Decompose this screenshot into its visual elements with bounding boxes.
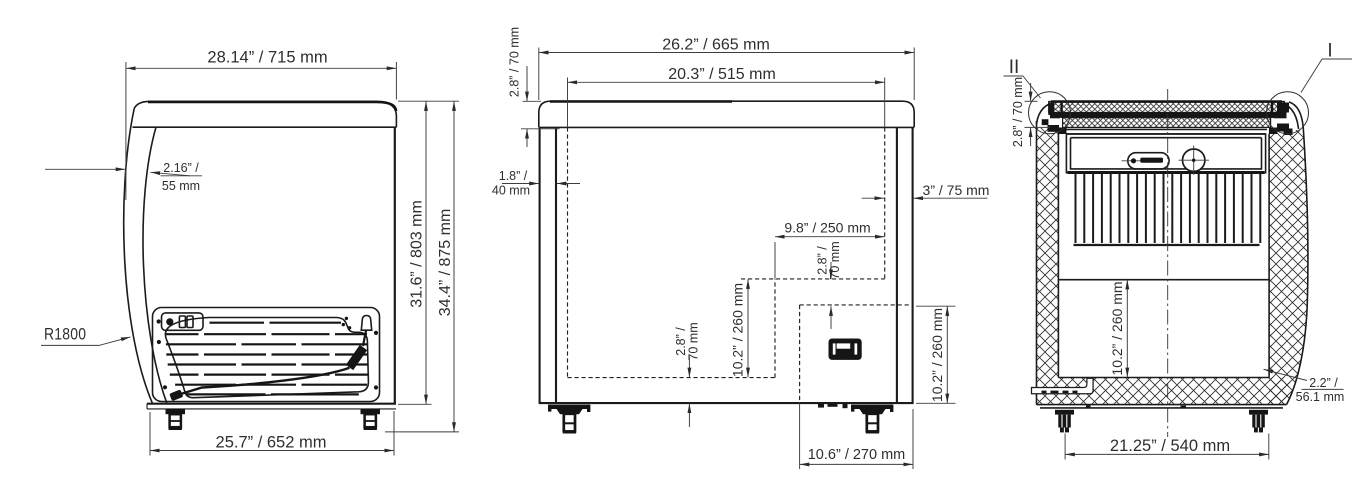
svg-text:28.14” / 715 mm: 28.14” / 715 mm — [207, 49, 327, 67]
svg-text:2.8” / 70 mm: 2.8” / 70 mm — [508, 27, 522, 97]
svg-text:10.2” / 260 mm: 10.2” / 260 mm — [1109, 281, 1125, 375]
svg-text:1.8” /: 1.8” / — [499, 169, 528, 183]
svg-text:20.3” / 515 mm: 20.3” / 515 mm — [668, 66, 776, 83]
svg-text:10.2” / 260 mm: 10.2” / 260 mm — [929, 308, 945, 402]
svg-text:3” / 75 mm: 3” / 75 mm — [923, 182, 990, 198]
svg-text:56.1 mm: 56.1 mm — [1296, 390, 1345, 404]
svg-text:55 mm: 55 mm — [162, 179, 200, 193]
svg-text:10.6” / 270 mm: 10.6” / 270 mm — [808, 447, 906, 463]
svg-text:9.8” / 250 mm: 9.8” / 250 mm — [784, 220, 870, 236]
svg-text:2.16” /: 2.16” / — [163, 161, 199, 175]
svg-text:25.7” / 652 mm: 25.7” / 652 mm — [216, 433, 327, 451]
svg-text:40 mm: 40 mm — [492, 183, 530, 197]
svg-text:26.2” / 665 mm: 26.2” / 665 mm — [662, 37, 770, 54]
svg-text:II: II — [1009, 57, 1020, 78]
svg-text:R1800: R1800 — [44, 325, 86, 344]
svg-text:10.2” / 260 mm: 10.2” / 260 mm — [730, 283, 746, 377]
svg-text:2.8” / 70 mm: 2.8” / 70 mm — [1011, 77, 1025, 147]
svg-text:21.25” / 540 mm: 21.25” / 540 mm — [1110, 437, 1230, 455]
svg-text:34.4” / 875 mm: 34.4” / 875 mm — [437, 209, 454, 317]
svg-text:2.2” /: 2.2” / — [1309, 376, 1338, 390]
svg-text:31.6” / 803 mm: 31.6” / 803 mm — [409, 200, 426, 308]
svg-text:2.8” /70 mm: 2.8” /70 mm — [674, 322, 701, 360]
svg-text:I: I — [1327, 41, 1332, 62]
svg-text:2.8” /70 mm: 2.8” /70 mm — [816, 241, 843, 279]
